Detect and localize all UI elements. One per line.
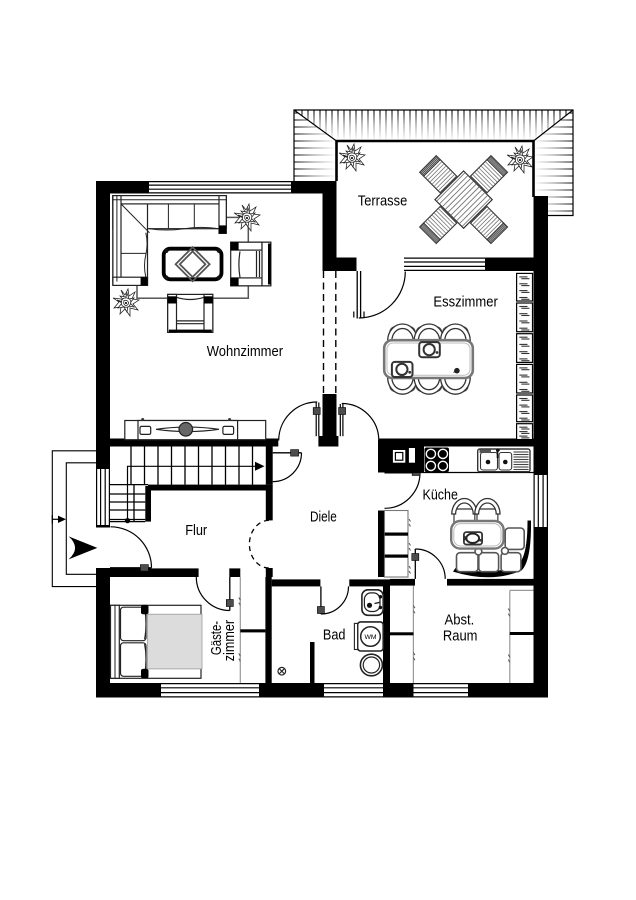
- svg-text:Küche: Küche: [423, 487, 458, 503]
- svg-text:Raum: Raum: [443, 629, 478, 645]
- svg-text:WM: WM: [364, 634, 376, 641]
- svg-text:Terrasse: Terrasse: [358, 194, 408, 210]
- svg-text:Abst.: Abst.: [445, 613, 475, 629]
- svg-text:Bad: Bad: [323, 628, 346, 644]
- svg-text:zimmer: zimmer: [222, 620, 238, 661]
- svg-text:Esszimmer: Esszimmer: [433, 295, 498, 311]
- svg-text:Wohnzimmer: Wohnzimmer: [207, 344, 283, 360]
- svg-text:Diele: Diele: [310, 510, 337, 526]
- svg-text:Flur: Flur: [185, 523, 207, 539]
